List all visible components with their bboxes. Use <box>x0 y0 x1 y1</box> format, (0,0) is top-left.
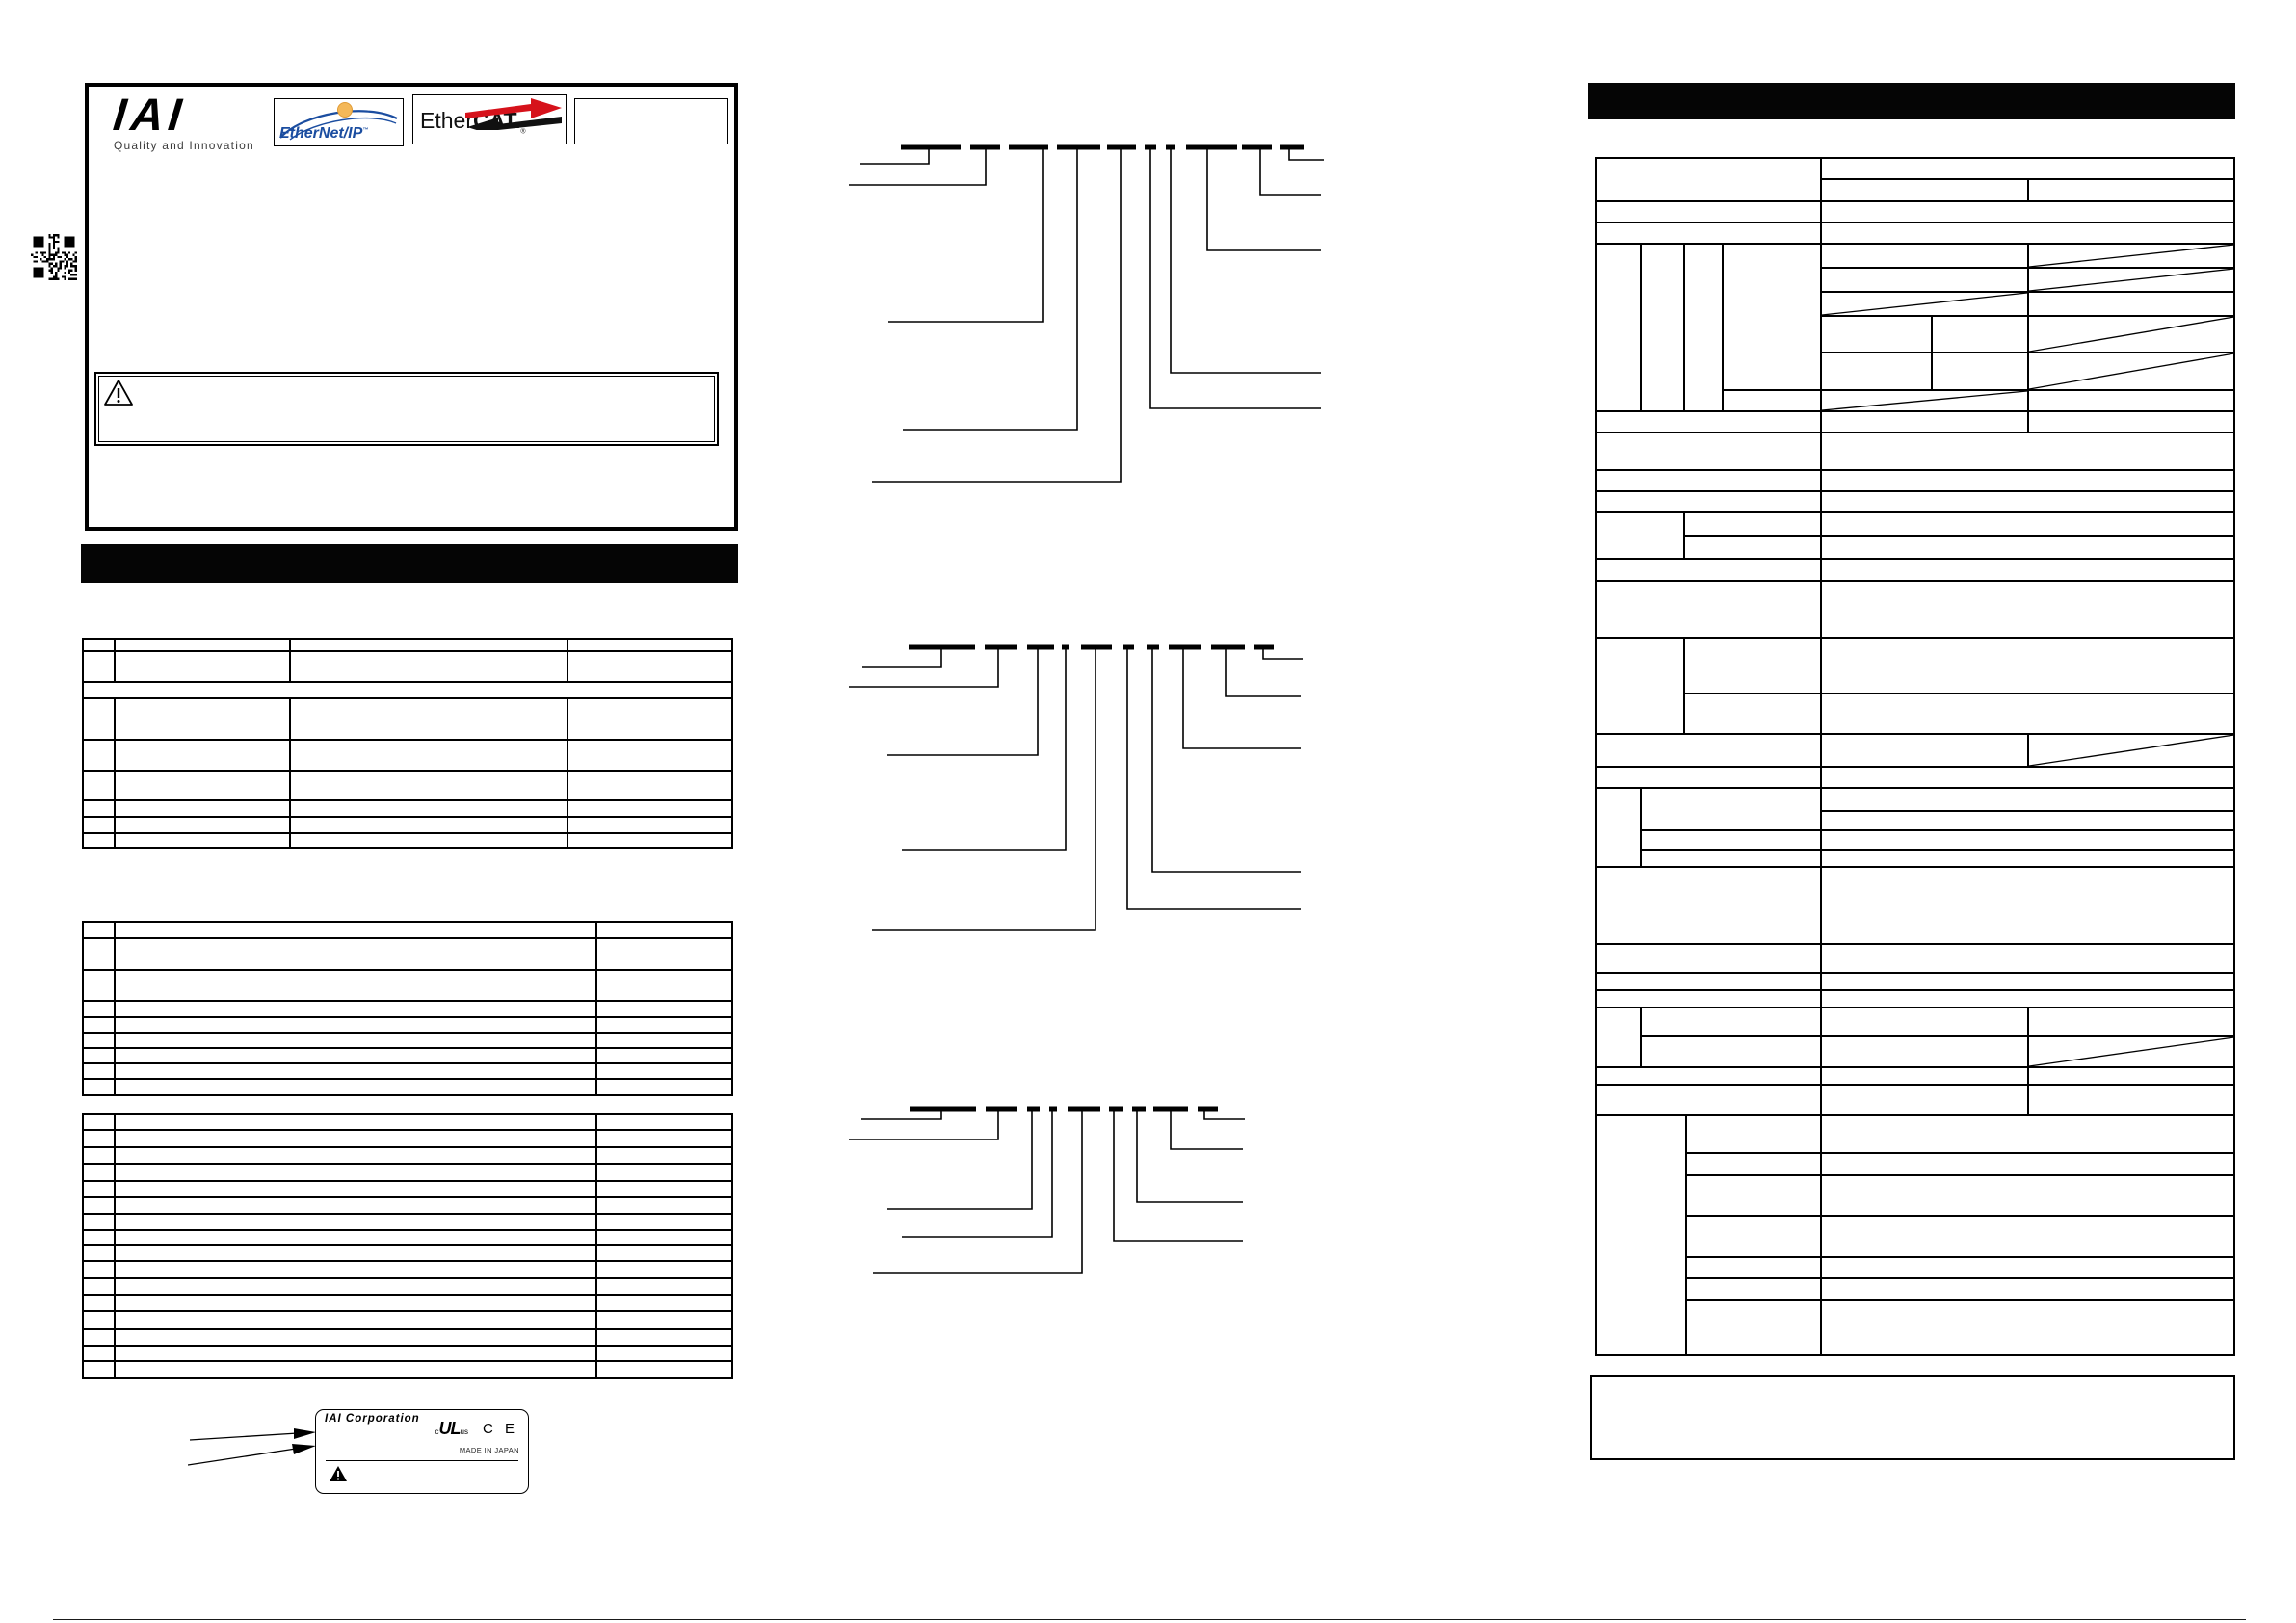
spec_table_a-cell <box>596 1001 733 1017</box>
na-diagonal-line <box>1822 391 2027 410</box>
model-code-diagram-1 <box>848 140 1330 491</box>
spec_table_b-cell <box>115 1214 596 1230</box>
parts_table-cell <box>290 817 567 833</box>
main_spec_table-cell <box>1686 1216 1821 1257</box>
spec_table_a-cell <box>82 970 115 1001</box>
main_spec_table-cell <box>1595 638 1684 734</box>
main_spec_table-cell <box>1821 559 2235 581</box>
main_spec_table-cell <box>1595 470 1821 491</box>
parts_table-cell <box>567 833 733 849</box>
main_spec_table-cell <box>1684 536 1821 559</box>
ethercat-arrows-icon <box>463 97 564 130</box>
main_spec_table-cell <box>1821 1085 2028 1115</box>
main_spec_table-cell <box>1821 1257 2235 1278</box>
main_spec_table-cell <box>1595 411 1821 432</box>
parts_table-cell <box>567 740 733 771</box>
spec_table_b-cell <box>596 1164 733 1181</box>
main_spec_table-cell <box>1821 432 2235 470</box>
main_spec_table-cell <box>1821 1278 2235 1300</box>
main_spec_table-cell <box>1821 811 2235 830</box>
spec_table_b-cell <box>596 1361 733 1379</box>
spec_table_b-cell <box>82 1181 115 1197</box>
parts_table-cell <box>290 800 567 817</box>
ethernet-ip-logo: EtherNet/IP™ <box>274 98 404 146</box>
spec_table_b-cell <box>82 1295 115 1311</box>
main_spec_table-cell <box>1821 850 2235 867</box>
spec_table_a-cell <box>596 938 733 970</box>
main_spec_table-cell <box>1821 694 2235 734</box>
main_spec_table-cell <box>2028 268 2235 292</box>
parts_table-cell <box>290 698 567 740</box>
main_spec_table-cell <box>1821 316 1932 353</box>
main_spec_table-cell <box>1821 1067 2028 1085</box>
parts_table-cell <box>82 651 115 682</box>
na-diagonal-line <box>2029 1037 2234 1066</box>
spec_table_b-cell <box>596 1230 733 1245</box>
spec_table_b-cell <box>596 1278 733 1295</box>
parts_table-cell <box>115 771 290 800</box>
spec_table_a-cell <box>82 1048 115 1063</box>
spec_table_b-cell <box>82 1311 115 1329</box>
spec_table_b-cell <box>115 1295 596 1311</box>
main_spec_table-cell <box>2028 179 2235 201</box>
spec_table_b-cell <box>115 1311 596 1329</box>
warning-triangle-icon <box>103 379 134 407</box>
spec_table_b-cell <box>596 1181 733 1197</box>
spec_table_b-cell <box>82 1346 115 1361</box>
spec_table_a-cell <box>115 1001 596 1017</box>
parts_table-cell <box>115 698 290 740</box>
page-bottom-rule <box>53 1619 2246 1620</box>
main_spec_table-cell <box>2028 1008 2235 1036</box>
ul-mark: cULus <box>435 1419 468 1439</box>
main_spec_table-cell <box>1821 470 2235 491</box>
parts_table-cell <box>290 833 567 849</box>
main_spec_table-cell <box>1686 1257 1821 1278</box>
main_spec_table-cell <box>1821 201 2235 223</box>
ethernet-ip-logo-text: EtherNet/IP™ <box>279 125 368 143</box>
main_spec_table-cell <box>1641 1036 1821 1067</box>
note-box <box>1590 1375 2235 1460</box>
main_spec_table-cell <box>1821 788 2235 811</box>
main_spec_table-cell <box>1821 244 2028 268</box>
main_spec_table-cell <box>1821 1216 2235 1257</box>
document-page: IAI Quality and Innovation EtherNet/IP™ … <box>0 0 2296 1623</box>
spec_table_a-cell <box>115 938 596 970</box>
spec_table_b-cell <box>115 1147 596 1164</box>
main_spec_table-cell <box>1595 491 1821 512</box>
spec_table_b-cell <box>596 1346 733 1361</box>
main_spec_table-cell <box>1595 559 1821 581</box>
spec_table_b-cell <box>115 1113 596 1130</box>
iai-logo-tagline: Quality and Innovation <box>114 139 258 152</box>
main_spec_table-cell <box>1595 244 1641 411</box>
main_spec_table-cell <box>1821 512 2235 536</box>
spec_table_a-cell <box>115 1063 596 1079</box>
ethercat-logo: EtherCAT.® <box>412 94 567 144</box>
parts_table-cell <box>115 800 290 817</box>
main_spec_table-cell <box>1821 1115 2235 1153</box>
spec_table_a-cell <box>115 970 596 1001</box>
main_spec_table-cell <box>2028 411 2235 432</box>
spec_table_b-cell <box>115 1245 596 1261</box>
label-pointer-arrows <box>188 1424 318 1470</box>
parts_table-cell <box>567 651 733 682</box>
spec_table_b-cell <box>82 1147 115 1164</box>
main_spec_table-cell <box>1821 1300 2235 1356</box>
spec_table_a-cell <box>82 1063 115 1079</box>
main_spec_table-cell <box>1595 767 1821 788</box>
na-diagonal-line <box>1822 293 2027 315</box>
main_spec_table-cell <box>2028 353 2235 390</box>
spec_table_a-cell <box>82 1001 115 1017</box>
main_spec_table-cell <box>1821 1008 2028 1036</box>
spec_table_a-cell <box>596 1033 733 1048</box>
main_spec_table-cell <box>1595 990 1821 1008</box>
main_spec_table-cell <box>1595 944 1821 973</box>
spec_table_a-cell <box>115 1079 596 1096</box>
parts_table-cell <box>290 740 567 771</box>
main_spec_table-cell <box>1821 292 2028 316</box>
spec_table_a-cell <box>115 1033 596 1048</box>
spec_table_b-cell <box>82 1245 115 1261</box>
main_spec_table-cell <box>1821 223 2235 244</box>
main_spec_table-cell <box>1595 788 1641 867</box>
main_spec_table-cell <box>1821 268 2028 292</box>
spec_table_b-cell <box>115 1329 596 1346</box>
parts_table-cell <box>82 740 115 771</box>
parts_table-cell <box>82 817 115 833</box>
main_spec_table-cell <box>1595 581 1821 638</box>
main_spec_table-cell <box>1686 1278 1821 1300</box>
parts_table-cell <box>82 638 115 651</box>
main_spec_table-cell <box>1595 1115 1686 1356</box>
main_spec_table-cell <box>1821 1036 2028 1067</box>
main_spec_table-cell <box>1641 830 1821 850</box>
spec_table_b-cell <box>596 1261 733 1278</box>
na-diagonal-line <box>2029 269 2234 291</box>
main_spec_table-cell <box>1821 1175 2235 1216</box>
spec_table_a-cell <box>115 921 596 938</box>
parts_table-cell <box>82 800 115 817</box>
parts_table-cell <box>567 638 733 651</box>
spec_table_b-cell <box>82 1230 115 1245</box>
spec_table_a-cell <box>596 1017 733 1033</box>
spec_table_b-cell <box>115 1164 596 1181</box>
na-diagonal-line <box>2029 735 2234 766</box>
main_spec_table-cell <box>1595 223 1821 244</box>
parts_table-cell <box>115 740 290 771</box>
parts_table-cell <box>567 800 733 817</box>
parts_table-cell <box>290 771 567 800</box>
parts_table-cell <box>82 682 733 698</box>
main_spec_table-cell <box>1595 1067 1821 1085</box>
ce-mark: C E <box>483 1421 518 1437</box>
model-code-diagram-2 <box>848 640 1310 940</box>
main_spec_table-cell <box>1595 734 1821 767</box>
na-diagonal-line <box>2029 353 2234 389</box>
main_spec_table-cell <box>1686 1175 1821 1216</box>
model-code-diagram-3 <box>848 1101 1257 1286</box>
warning-notice-inner-border <box>98 376 715 442</box>
main_spec_table-cell <box>2028 390 2235 411</box>
main_spec_table-cell <box>1932 353 2028 390</box>
main_spec_table-cell <box>1821 734 2028 767</box>
main_spec_table-cell <box>1821 411 2028 432</box>
spec_table_b-cell <box>82 1261 115 1278</box>
spec_table_b-cell <box>596 1214 733 1230</box>
spec_table_a-cell <box>82 1079 115 1096</box>
main_spec_table-cell <box>2028 734 2235 767</box>
rating-label-divider <box>326 1460 518 1461</box>
spec_table_a-cell <box>115 1017 596 1033</box>
parts_table-cell <box>82 833 115 849</box>
spec_table_b-cell <box>596 1311 733 1329</box>
main_spec_table-cell <box>1684 244 1723 411</box>
parts_table-cell <box>115 638 290 651</box>
iai-logo-text: IAI <box>112 92 261 137</box>
spec_table_a-cell <box>115 1048 596 1063</box>
main_spec_table-cell <box>1932 316 2028 353</box>
main_spec_table-cell <box>1821 990 2235 1008</box>
rating-label-company: IAI Corporation <box>325 1413 420 1425</box>
main_spec_table-cell <box>1821 491 2235 512</box>
main_spec_table-cell <box>1686 1115 1821 1153</box>
main_spec_table-cell <box>1821 353 1932 390</box>
spec_table_b-cell <box>82 1278 115 1295</box>
parts_table-cell <box>290 638 567 651</box>
main_spec_table-cell <box>1686 1153 1821 1175</box>
spec_table_a-cell <box>82 938 115 970</box>
main_spec_table-cell <box>2028 292 2235 316</box>
main_spec_table-cell <box>1821 179 2028 201</box>
spec_table_a-cell <box>82 1017 115 1033</box>
main_spec_table-cell <box>1595 867 1821 944</box>
spec_table_b-cell <box>82 1197 115 1214</box>
main_spec_table-cell <box>1821 830 2235 850</box>
spec_table_a-cell <box>596 1048 733 1063</box>
main_spec_table-cell <box>1641 1008 1821 1036</box>
registered-symbol: ® <box>520 129 525 136</box>
main_spec_table-cell <box>1595 512 1684 559</box>
main_spec_table-cell <box>1641 788 1821 830</box>
main_spec_table-cell <box>1641 850 1821 867</box>
spec_table_b-cell <box>115 1230 596 1245</box>
spec_table_a-cell <box>596 970 733 1001</box>
main_spec_table-cell <box>2028 1036 2235 1067</box>
spec_table_b-cell <box>115 1346 596 1361</box>
spec_table_b-cell <box>115 1261 596 1278</box>
spec_table_b-cell <box>596 1295 733 1311</box>
spec_table_b-cell <box>82 1329 115 1346</box>
parts_table-cell <box>82 698 115 740</box>
main_spec_table-cell <box>1821 973 2235 990</box>
made-in-text: MADE IN JAPAN <box>460 1446 519 1454</box>
parts_table-cell <box>115 651 290 682</box>
main_spec_table-cell <box>1595 1008 1641 1067</box>
main_spec_table-cell <box>1684 512 1821 536</box>
main_spec_table-cell <box>1821 638 2235 694</box>
main_spec_table-cell <box>1821 536 2235 559</box>
parts_table-cell <box>567 771 733 800</box>
main_spec_table-cell <box>1595 201 1821 223</box>
rating-label: IAI Corporation cULus C E MADE IN JAPAN <box>315 1409 529 1494</box>
spec_table_a-cell <box>596 1079 733 1096</box>
main_spec_table-cell <box>1821 867 2235 944</box>
iai-logo: IAI Quality and Innovation <box>114 92 258 159</box>
main_spec_table-cell <box>1595 157 1821 201</box>
spec-section-header-bar <box>1588 83 2235 119</box>
spec_table_b-cell <box>115 1130 596 1147</box>
na-diagonal-line <box>2029 317 2234 352</box>
spec_table_b-cell <box>82 1214 115 1230</box>
main_spec_table-cell <box>2028 244 2235 268</box>
certification-box <box>574 98 728 144</box>
parts_table-cell <box>290 651 567 682</box>
warning-notice-box <box>94 372 719 446</box>
spec_table_b-cell <box>82 1130 115 1147</box>
spec_table_a-cell <box>596 1063 733 1079</box>
parts_table-cell <box>82 771 115 800</box>
main_spec_table-cell <box>1821 581 2235 638</box>
main_spec_table-cell <box>2028 316 2235 353</box>
main_spec_table-cell <box>1684 638 1821 694</box>
main_spec_table-cell <box>1821 157 2235 179</box>
main_spec_table-cell <box>1595 1085 1821 1115</box>
spec_table_b-cell <box>596 1197 733 1214</box>
main_spec_table-cell <box>1821 767 2235 788</box>
spec_table_b-cell <box>115 1278 596 1295</box>
spec_table_b-cell <box>82 1164 115 1181</box>
main_spec_table-cell <box>1821 944 2235 973</box>
trademark-symbol: ™ <box>362 128 368 134</box>
spec_table_b-cell <box>82 1113 115 1130</box>
spec_table_b-cell <box>115 1197 596 1214</box>
parts_table-cell <box>567 817 733 833</box>
na-diagonal-line <box>2029 245 2234 267</box>
spec_table_b-cell <box>115 1181 596 1197</box>
main_spec_table-cell <box>1684 694 1821 734</box>
parts_table-cell <box>115 833 290 849</box>
spec_table_b-cell <box>82 1361 115 1379</box>
main_spec_table-cell <box>1595 973 1821 990</box>
main_spec_table-cell <box>1723 390 1821 411</box>
main_spec_table-cell <box>2028 1067 2235 1085</box>
section-header-bar <box>81 544 738 583</box>
spec_table_a-cell <box>82 921 115 938</box>
main_spec_table-cell <box>1686 1300 1821 1356</box>
warning-filled-triangle-icon <box>329 1465 348 1482</box>
main_spec_table-cell <box>1723 244 1821 390</box>
spec_table_a-cell <box>82 1033 115 1048</box>
spec_table_a-cell <box>596 921 733 938</box>
spec_table_b-cell <box>596 1147 733 1164</box>
spec_table_b-cell <box>596 1245 733 1261</box>
main_spec_table-cell <box>1595 432 1821 470</box>
main_spec_table-cell <box>2028 1085 2235 1115</box>
spec_table_b-cell <box>596 1329 733 1346</box>
spec_table_b-cell <box>596 1113 733 1130</box>
main_spec_table-cell <box>1641 244 1684 411</box>
spec_table_b-cell <box>115 1361 596 1379</box>
main_spec_table-cell <box>1821 1153 2235 1175</box>
main_spec_table-cell <box>1821 390 2028 411</box>
parts_table-cell <box>567 698 733 740</box>
spec_table_b-cell <box>596 1130 733 1147</box>
qr-code <box>31 234 77 280</box>
parts_table-cell <box>115 817 290 833</box>
